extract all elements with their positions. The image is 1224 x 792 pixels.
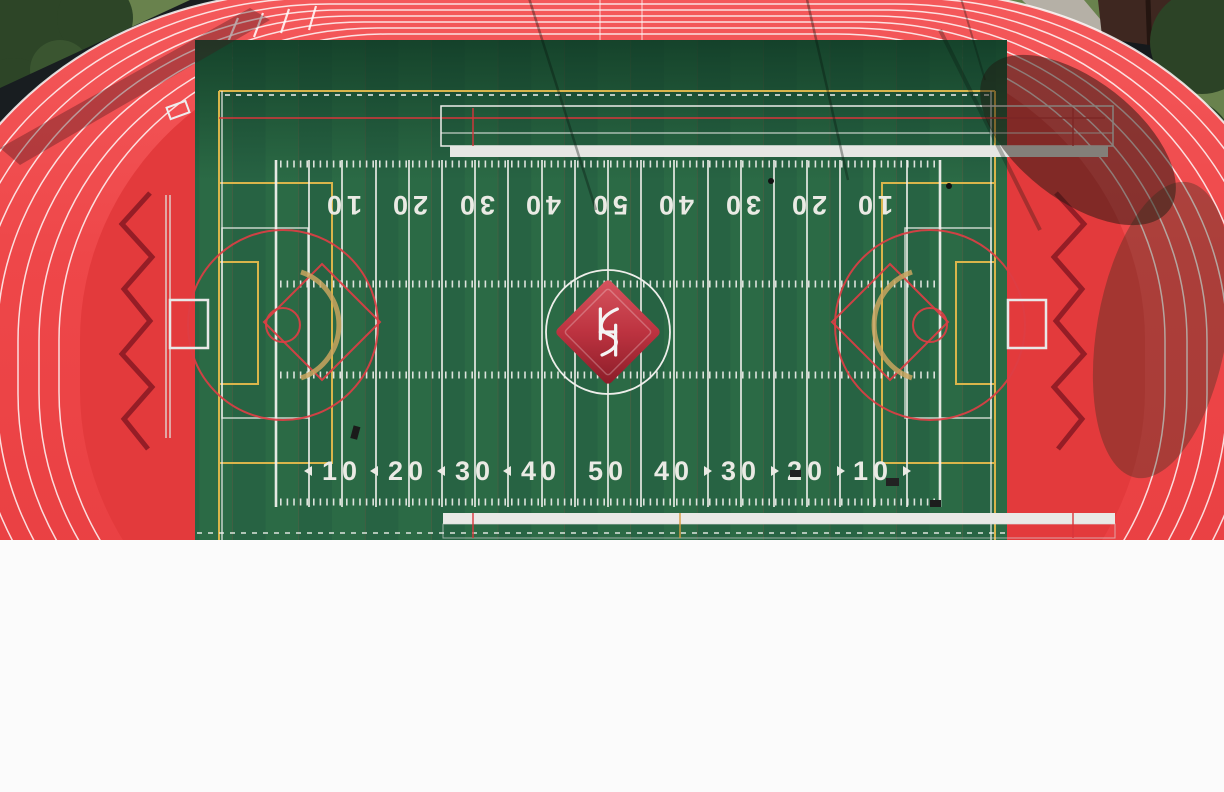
yard-numbers-bottom: 10 20 30 40 50 40 30 20 10: [322, 456, 893, 486]
svg-text:30: 30: [455, 190, 495, 220]
svg-text:30: 30: [721, 190, 761, 220]
yard-numbers-top: 10 20 30 40 50 40 30 20 10: [322, 190, 893, 220]
svg-text:10: 10: [322, 190, 362, 220]
stadium-photo-svg: 10 20 30 40 50 40 30 20 10 10 20 30 40 5…: [0, 0, 1224, 540]
svg-text:20: 20: [787, 190, 827, 220]
stadium-photo: 10 20 30 40 50 40 30 20 10 10 20 30 40 5…: [0, 0, 1224, 540]
center-field-logo: [546, 270, 670, 394]
svg-text:40: 40: [654, 190, 694, 220]
svg-text:40: 40: [521, 190, 561, 220]
svg-text:40: 40: [521, 456, 561, 486]
football-field: 10 20 30 40 50 40 30 20 10 10 20 30 40 5…: [188, 40, 1115, 540]
svg-text:20: 20: [388, 456, 428, 486]
svg-text:10: 10: [853, 190, 893, 220]
svg-text:50: 50: [588, 456, 628, 486]
svg-text:30: 30: [455, 456, 495, 486]
flyer-page: 10 20 30 40 50 40 30 20 10 10 20 30 40 5…: [0, 0, 1224, 792]
info-section: HOMESMART ® PREMIER Andrew Hoyt (+1) 480…: [0, 540, 1224, 792]
svg-text:20: 20: [388, 190, 428, 220]
svg-text:30: 30: [721, 456, 761, 486]
svg-text:10: 10: [322, 456, 362, 486]
svg-text:40: 40: [654, 456, 694, 486]
